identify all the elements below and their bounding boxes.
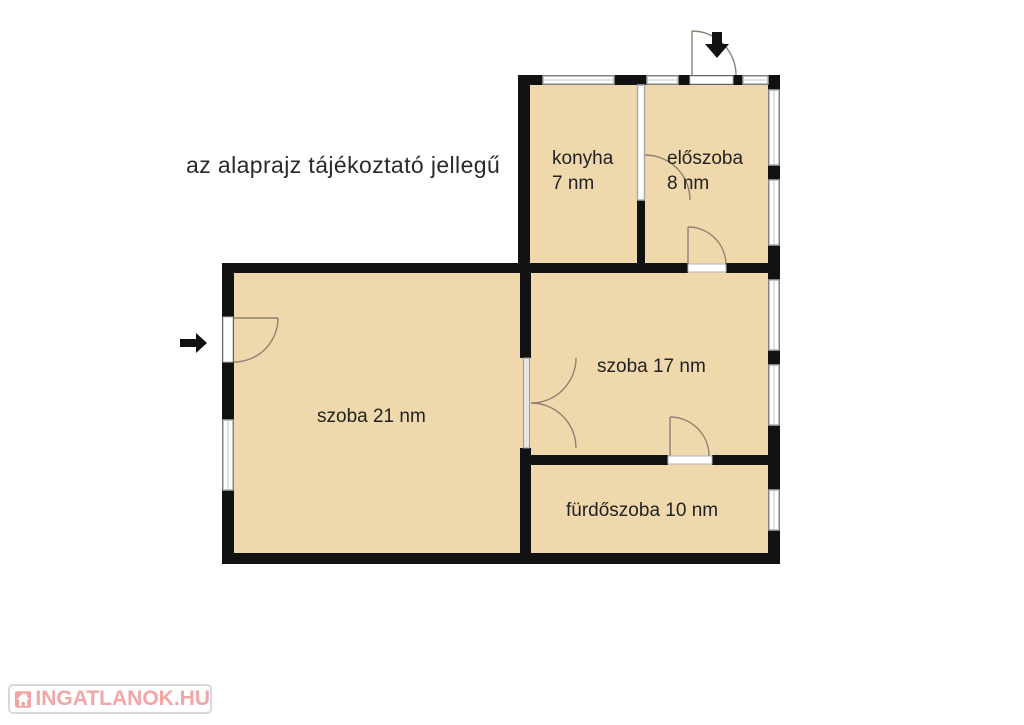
room-area: 7 nm (552, 171, 613, 196)
floor-plan-image: az alaprajz tájékoztató jellegű konyha 7… (0, 0, 1024, 725)
wall-mid-horizontal-a (222, 263, 688, 273)
disclaimer-text: az alaprajz tájékoztató jellegű (186, 152, 500, 179)
room-name: előszoba (667, 146, 743, 171)
entrance-arrow-left-icon (180, 333, 207, 353)
floor-plan-drawing (0, 0, 1024, 725)
house-icon (15, 688, 31, 711)
wall-konyha-eloszoba-lower (637, 200, 645, 273)
wall-mid-horizontal-b (726, 263, 780, 273)
room-name: konyha (552, 146, 613, 171)
room-label-szoba21: szoba 21 nm (317, 404, 426, 429)
sill-entrance-left (223, 317, 233, 362)
sill-szoba17-furdoszoba (668, 456, 712, 464)
room-area: 8 nm (667, 171, 743, 196)
room-label-konyha: konyha 7 nm (552, 146, 613, 196)
double-door-leaves (524, 358, 530, 448)
wall-szoba-divider-a (520, 263, 531, 358)
sill-eloszoba-szoba17 (688, 264, 726, 272)
sill-entrance-top (690, 76, 733, 84)
entrance-arrow-top-icon (705, 32, 729, 58)
watermark-text: INGATLANOK.HU (35, 687, 210, 711)
wall-furdoszoba-a (525, 455, 668, 465)
wall-bottom (222, 553, 780, 564)
room-label-furdoszoba: fürdőszoba 10 nm (566, 498, 718, 523)
room-label-eloszoba: előszoba 8 nm (667, 146, 743, 196)
ingatlanok-watermark: INGATLANOK.HU (8, 684, 212, 714)
wall-upper-left (518, 75, 530, 273)
glazed-partition-konyha-eloszoba (638, 85, 645, 200)
wall-left (222, 263, 234, 564)
room-label-szoba17: szoba 17 nm (597, 354, 706, 379)
wall-furdoszoba-b (712, 455, 768, 465)
